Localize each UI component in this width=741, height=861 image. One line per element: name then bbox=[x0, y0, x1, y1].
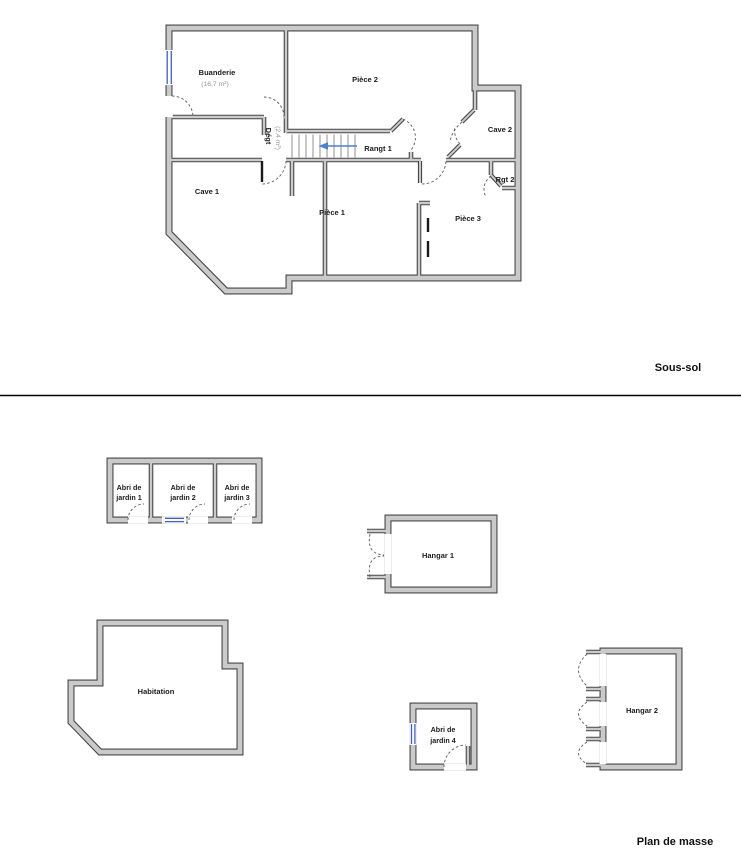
section-title-plan-de-masse: Plan de masse bbox=[637, 836, 713, 848]
building-label-abri2-line2: jardin 2 bbox=[169, 493, 196, 502]
room-area-buanderie: (16,7 m²) bbox=[201, 81, 229, 88]
building-label-abri3-line1: Abri de bbox=[225, 483, 250, 492]
stair-direction-arrow bbox=[319, 142, 358, 149]
section-title-sous-sol: Sous-sol bbox=[655, 362, 701, 374]
sous-sol-inner-walls-edge bbox=[169, 28, 518, 277]
room-label-piece3: Pièce 3 bbox=[455, 214, 481, 223]
floorplan-canvas: Buanderie (16,7 m²) Pièce 2 Cave 2 Rangt… bbox=[0, 0, 741, 861]
sous-sol-plan: Buanderie (16,7 m²) Pièce 2 Cave 2 Rangt… bbox=[165, 28, 701, 374]
room-label-piece1: Pièce 1 bbox=[319, 208, 345, 217]
room-label-cave2: Cave 2 bbox=[488, 125, 512, 134]
plan-de-masse: Abri de jardin 1 Abri de jardin 2 Abri d… bbox=[71, 461, 713, 848]
closed-door-ticks bbox=[262, 161, 428, 257]
building-label-hangar2: Hangar 2 bbox=[626, 706, 658, 715]
building-label-habitation: Habitation bbox=[138, 687, 175, 696]
building-label-abri2-line1: Abri de bbox=[171, 483, 196, 492]
building-label-abri1-line2: jardin 1 bbox=[115, 493, 142, 502]
room-area-degagement: (2,4 m²) bbox=[274, 126, 281, 150]
room-label-piece2: Pièce 2 bbox=[352, 75, 378, 84]
masse-outer-walls-fill bbox=[71, 461, 679, 767]
building-label-abri4-line1: Abri de bbox=[431, 725, 456, 734]
sous-sol-inner-walls-fill bbox=[169, 28, 518, 277]
room-label-cave1: Cave 1 bbox=[195, 187, 219, 196]
room-label-buanderie: Buanderie bbox=[199, 68, 236, 77]
building-label-hangar1: Hangar 1 bbox=[422, 551, 454, 560]
masse-outer-walls-edge bbox=[71, 461, 679, 767]
room-label-rgt2: Rgt 2 bbox=[496, 175, 515, 184]
floorplan-page: Buanderie (16,7 m²) Pièce 2 Cave 2 Rangt… bbox=[0, 0, 741, 861]
room-label-degagement: Dégt bbox=[264, 128, 273, 145]
masse-door-swing-arcs bbox=[128, 504, 587, 767]
room-label-rangt1: Rangt 1 bbox=[364, 144, 392, 153]
masse-wall-openings bbox=[128, 517, 606, 771]
masse-inner-walls-edge bbox=[151, 461, 604, 766]
building-label-abri3-line2: jardin 3 bbox=[223, 493, 250, 502]
building-label-abri1-line1: Abri de bbox=[117, 483, 142, 492]
masse-inner-walls-fill bbox=[151, 461, 604, 766]
building-label-abri4-line2: jardin 4 bbox=[429, 736, 456, 745]
